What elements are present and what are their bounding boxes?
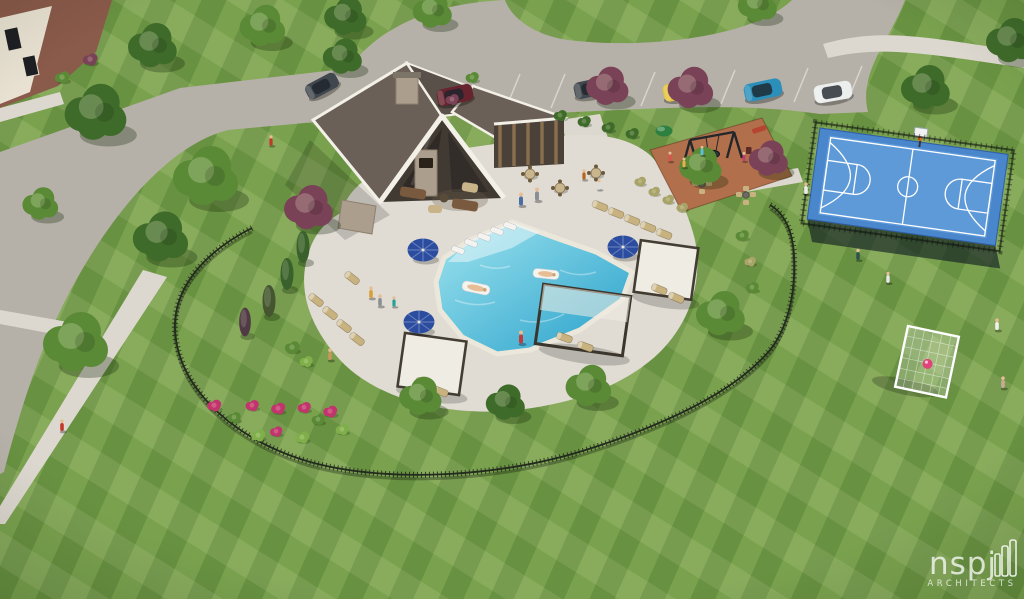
vignette [0,0,1024,599]
rendering-canvas: nspj ARCHITECTS [0,0,1024,599]
rendering-stage: nspj ARCHITECTS [0,0,1024,599]
watermark-brand: nspj [929,546,997,582]
watermark-tagline: ARCHITECTS [927,579,1016,589]
